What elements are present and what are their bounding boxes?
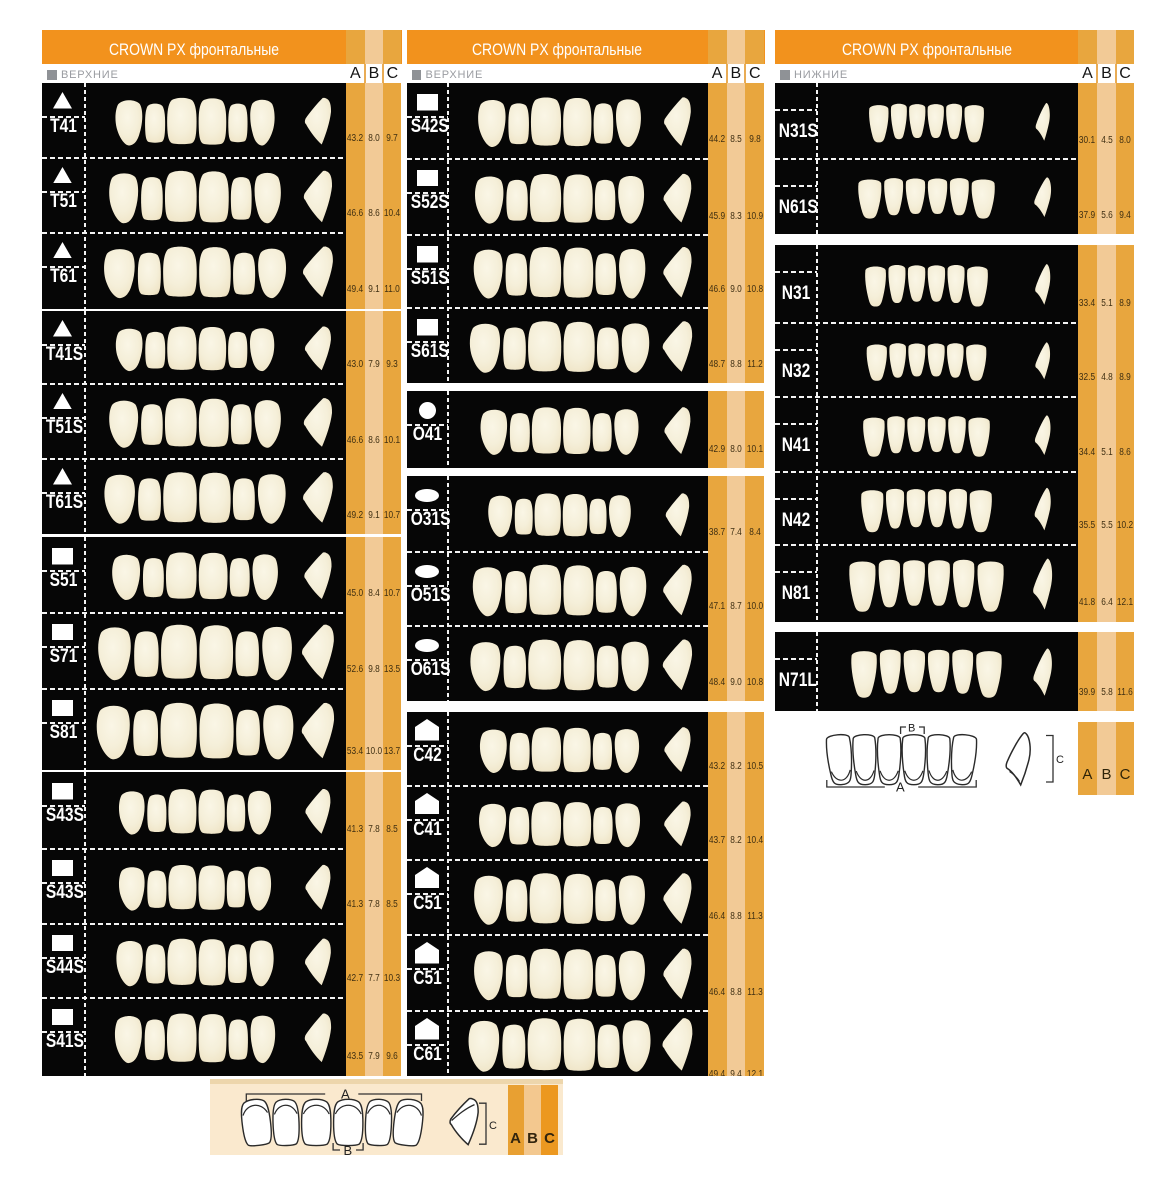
- svg-text:C: C: [489, 1120, 497, 1132]
- svg-text:C: C: [1056, 754, 1064, 766]
- svg-text:A: A: [896, 780, 905, 795]
- svg-text:B: B: [908, 723, 915, 735]
- svg-text:B: B: [343, 1143, 352, 1156]
- svg-text:A: A: [341, 1086, 350, 1101]
